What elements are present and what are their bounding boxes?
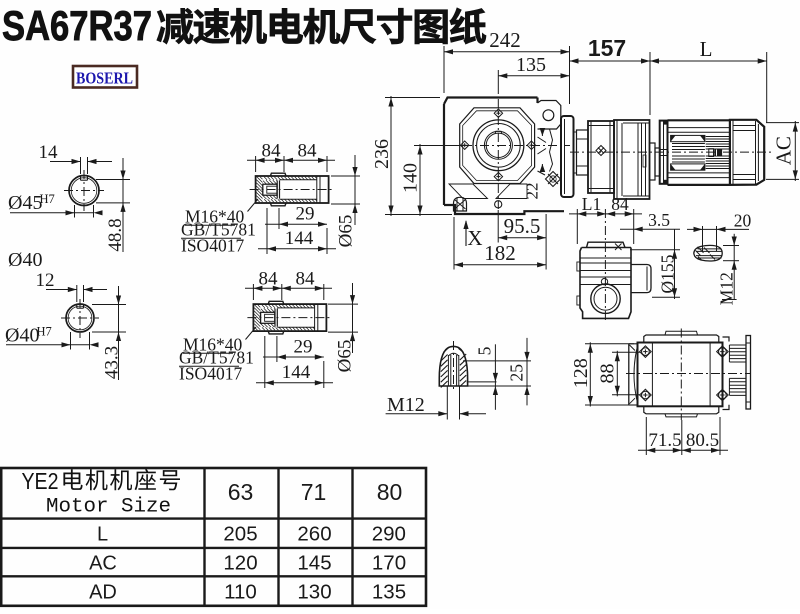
svg-text:84: 84 — [259, 269, 279, 290]
svg-text:95.5: 95.5 — [504, 214, 541, 238]
svg-text:Ø40: Ø40 — [5, 325, 39, 347]
svg-text:128: 128 — [570, 358, 592, 388]
svg-text:135: 135 — [372, 580, 406, 603]
svg-text:X: X — [467, 226, 482, 250]
svg-text:3.5: 3.5 — [648, 210, 670, 230]
svg-text:80.5: 80.5 — [686, 430, 719, 451]
svg-text:130: 130 — [297, 580, 331, 603]
svg-text:25: 25 — [507, 364, 527, 382]
svg-text:71: 71 — [301, 479, 327, 505]
svg-text:22: 22 — [523, 183, 542, 200]
svg-text:260: 260 — [297, 523, 331, 546]
svg-text:71.5: 71.5 — [648, 430, 681, 451]
svg-text:Ø45: Ø45 — [8, 192, 42, 214]
svg-text:20: 20 — [734, 211, 752, 231]
svg-text:236: 236 — [371, 139, 393, 169]
svg-text:BOSERL: BOSERL — [76, 69, 133, 88]
svg-text:48.8: 48.8 — [105, 218, 126, 251]
svg-text:29: 29 — [294, 337, 313, 358]
svg-text:YE2: YE2 — [22, 468, 59, 494]
svg-text:182: 182 — [484, 241, 516, 265]
svg-text:110: 110 — [224, 580, 257, 603]
svg-text:12: 12 — [36, 270, 55, 291]
svg-text:ISO4017: ISO4017 — [181, 236, 244, 256]
svg-text:242: 242 — [489, 28, 521, 52]
svg-text:290: 290 — [372, 523, 406, 546]
svg-text:205: 205 — [223, 523, 257, 546]
svg-text:80: 80 — [377, 479, 403, 505]
svg-text:Motor Size: Motor Size — [46, 496, 171, 519]
svg-text:84: 84 — [611, 194, 629, 214]
svg-text:AD: AD — [89, 581, 117, 603]
svg-text:43.3: 43.3 — [102, 346, 123, 379]
svg-text:AC: AC — [89, 552, 117, 574]
svg-text:SA67R37: SA67R37 — [2, 2, 152, 49]
svg-text:145: 145 — [297, 551, 331, 574]
svg-text:M12: M12 — [387, 394, 425, 416]
svg-text:135: 135 — [516, 54, 546, 76]
svg-text:84: 84 — [298, 141, 318, 162]
svg-text:170: 170 — [372, 551, 406, 574]
svg-text:L: L — [700, 37, 713, 61]
svg-text:88: 88 — [597, 364, 619, 384]
svg-text:14: 14 — [39, 142, 59, 163]
svg-text:Ø40: Ø40 — [8, 249, 42, 271]
svg-text:L1: L1 — [582, 194, 601, 214]
svg-text:Ø155: Ø155 — [658, 254, 678, 293]
svg-text:140: 140 — [400, 163, 422, 193]
svg-text:84: 84 — [262, 141, 282, 162]
svg-text:29: 29 — [296, 204, 315, 225]
svg-text:5: 5 — [475, 346, 495, 355]
svg-text:AC: AC — [772, 136, 796, 165]
svg-text:Ø65: Ø65 — [336, 215, 357, 248]
svg-text:L: L — [97, 524, 108, 546]
svg-text:157: 157 — [588, 35, 626, 61]
svg-text:H7: H7 — [37, 325, 52, 339]
svg-text:M12: M12 — [717, 272, 737, 305]
svg-text:Ø65: Ø65 — [335, 340, 356, 373]
svg-text:63: 63 — [228, 479, 254, 505]
svg-text:144: 144 — [285, 228, 314, 249]
svg-text:84: 84 — [296, 269, 316, 290]
svg-text:ISO4017: ISO4017 — [179, 364, 242, 384]
svg-text:144: 144 — [282, 362, 311, 383]
svg-text:120: 120 — [223, 551, 257, 574]
svg-text:H7: H7 — [40, 192, 55, 206]
